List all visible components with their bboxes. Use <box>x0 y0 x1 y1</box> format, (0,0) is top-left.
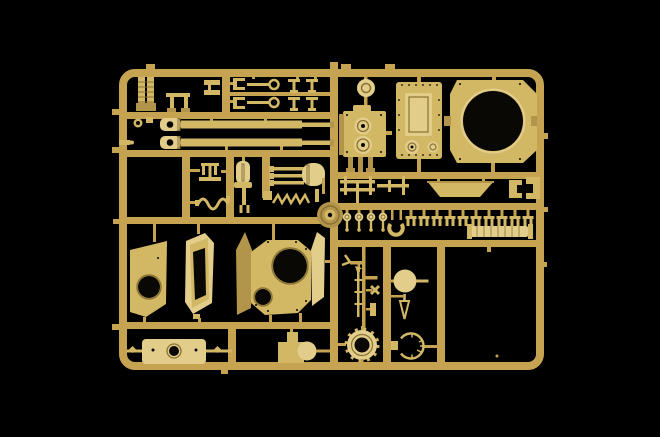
slide-part <box>370 303 376 316</box>
gate-nub <box>541 207 548 212</box>
gate-nub <box>221 369 228 374</box>
gate-nub <box>541 133 548 139</box>
runner-v7 <box>437 240 445 370</box>
gate-nub <box>112 109 119 115</box>
sprue-photo <box>0 0 660 437</box>
rear-hatch-plate <box>396 73 442 173</box>
runner-v3 <box>226 153 234 224</box>
runner-mini-top <box>226 92 334 96</box>
runner-v6 <box>383 240 391 370</box>
photo-stage <box>0 0 660 437</box>
runner-v5 <box>228 322 236 370</box>
gate-nub <box>112 324 119 330</box>
gate-nub <box>112 147 119 153</box>
gate-tab <box>146 64 155 71</box>
gate-tab <box>385 64 395 69</box>
gate-tab <box>341 64 351 70</box>
gate-nub <box>113 219 119 224</box>
idler-wheel <box>317 202 343 228</box>
runner-h5 <box>334 172 540 179</box>
runner-h6 <box>334 203 540 210</box>
runner-v2 <box>182 153 190 224</box>
ribbed-roller <box>467 224 533 239</box>
gate-nub <box>541 262 547 267</box>
turret-ring-plate <box>444 73 537 173</box>
